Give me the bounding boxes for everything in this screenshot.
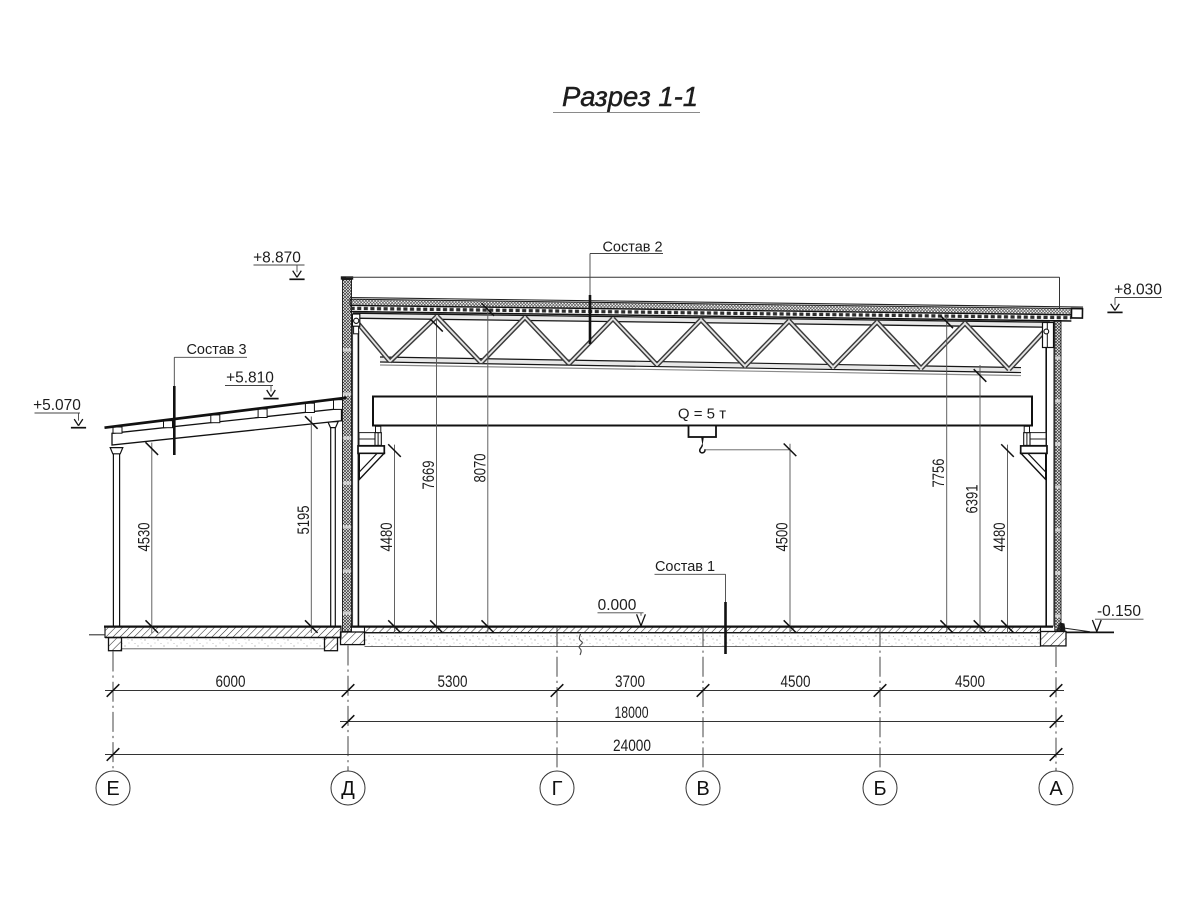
svg-text:5195: 5195 (294, 506, 313, 535)
svg-text:А: А (1049, 778, 1063, 800)
svg-text:Е: Е (106, 778, 119, 800)
svg-text:4530: 4530 (134, 523, 153, 552)
svg-text:+8.870: +8.870 (253, 250, 301, 267)
svg-text:24000: 24000 (613, 736, 651, 755)
svg-text:6000: 6000 (216, 672, 246, 691)
svg-text:4500: 4500 (781, 672, 811, 691)
svg-text:4500: 4500 (955, 672, 985, 691)
svg-text:В: В (696, 778, 709, 800)
svg-text:5300: 5300 (438, 672, 468, 691)
svg-text:Разрез 1-1: Разрез 1-1 (562, 81, 698, 112)
svg-text:4480: 4480 (377, 523, 396, 552)
svg-text:7669: 7669 (419, 461, 438, 490)
svg-text:7756: 7756 (929, 459, 948, 488)
svg-text:6391: 6391 (963, 485, 982, 514)
svg-text:Б: Б (873, 778, 886, 800)
svg-text:Д: Д (341, 778, 355, 800)
svg-text:+8.030: +8.030 (1114, 282, 1162, 299)
svg-text:-0.150: -0.150 (1097, 603, 1141, 620)
svg-text:18000: 18000 (615, 703, 649, 722)
svg-text:0.000: 0.000 (598, 597, 637, 614)
svg-text:4500: 4500 (773, 523, 792, 552)
svg-text:Состав 3: Состав 3 (186, 342, 246, 358)
svg-text:Q = 5 т: Q = 5 т (678, 406, 726, 423)
svg-text:3700: 3700 (615, 672, 645, 691)
svg-text:8070: 8070 (470, 454, 489, 483)
svg-text:+5.070: +5.070 (33, 397, 81, 414)
svg-text:4480: 4480 (990, 523, 1009, 552)
svg-text:+5.810: +5.810 (226, 370, 274, 387)
svg-text:Состав 1: Состав 1 (655, 559, 715, 575)
svg-text:Г: Г (552, 778, 563, 800)
